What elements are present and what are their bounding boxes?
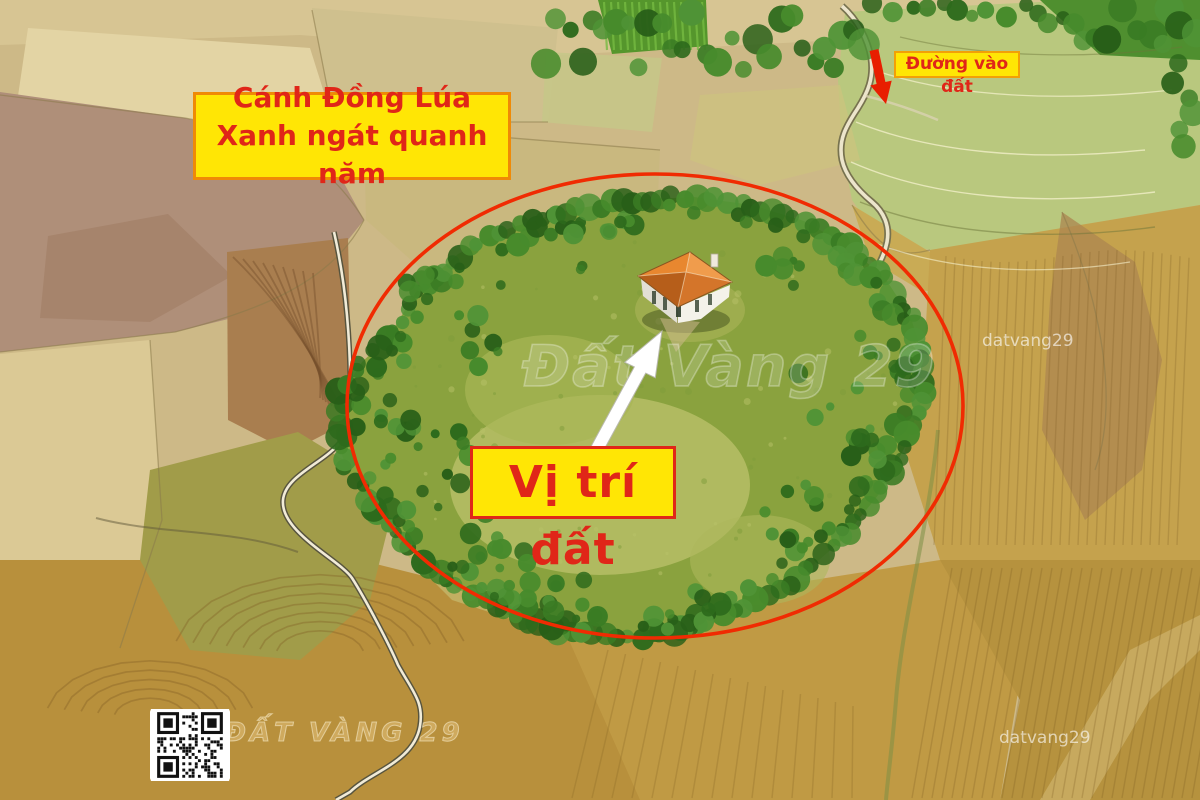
chimney [711, 254, 718, 267]
road-caption: Đường vào đất [894, 51, 1020, 78]
location-caption: Vị trí đất [470, 446, 676, 519]
field-caption: Cánh Đồng Lúa Xanh ngát quanh năm [193, 92, 511, 180]
watermark-small-bottom-right: datvang29 [999, 728, 1091, 748]
photo-scene [0, 0, 1200, 800]
watermark-center: Đất Vàng 29 [522, 334, 936, 400]
field-caption-line1: Cánh Đồng Lúa [196, 79, 508, 117]
watermark-bottom-left: ĐẤT VÀNG 29 [224, 718, 464, 748]
aerial-photo: Đất Vàng 29 Cánh Đồng Lúa Xanh ngát quan… [0, 0, 1200, 800]
qr-code-graphic [150, 709, 230, 781]
qr-code-icon [150, 709, 230, 781]
field-caption-line2: Xanh ngát quanh năm [196, 117, 508, 193]
watermark-small-top-right: datvang29 [982, 331, 1074, 351]
